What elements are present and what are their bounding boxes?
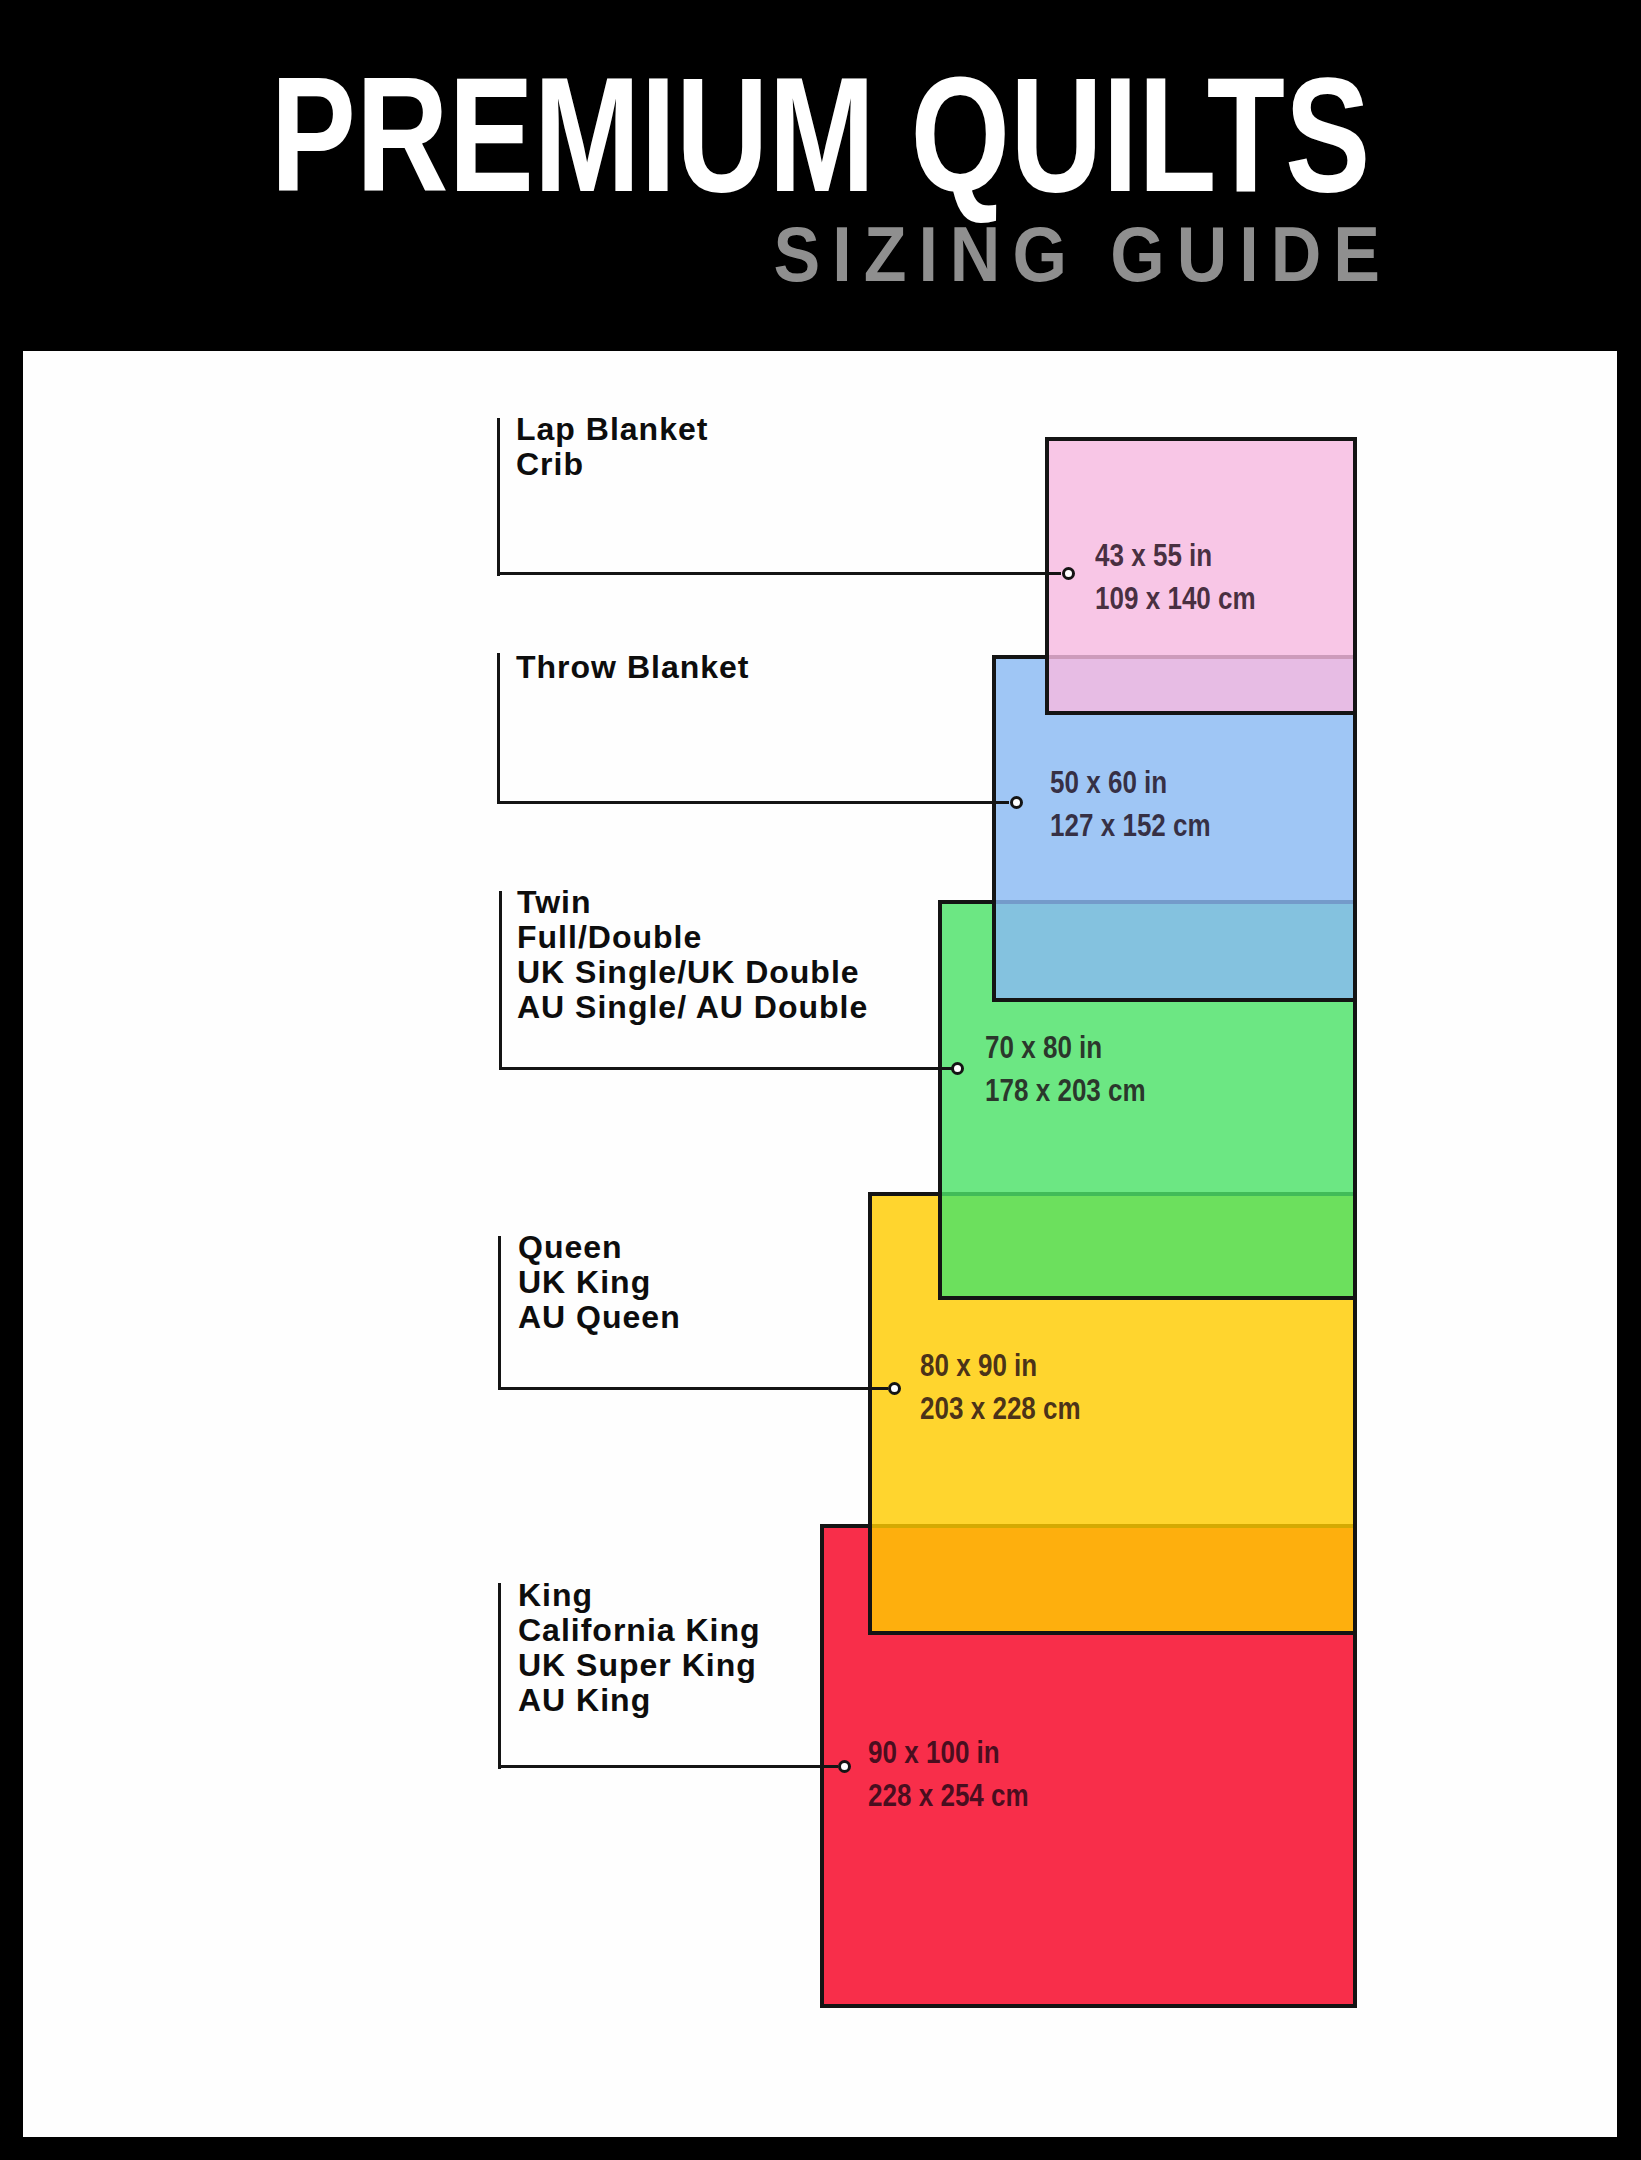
label-line: AU King: [518, 1683, 761, 1718]
quilt-name-labels: Queen UK King AU Queen: [518, 1230, 681, 1335]
page-title: PREMIUM QUILTS: [0, 40, 1641, 228]
leader-line-vertical: [499, 891, 502, 1070]
leader-line-vertical: [498, 1236, 501, 1390]
size-cm: 127 x 152 cm: [1050, 804, 1211, 847]
leader-line-horizontal: [499, 1067, 952, 1070]
label-line: AU Single/ AU Double: [517, 990, 868, 1025]
quilt-name-labels: Twin Full/Double UK Single/UK Double AU …: [517, 885, 868, 1025]
leader-line-horizontal: [497, 801, 1009, 804]
size-inches: 80 x 90 in: [920, 1344, 1081, 1387]
quilt-name-labels: Lap Blanket Crib: [516, 412, 708, 482]
size-inches: 50 x 60 in: [1050, 761, 1211, 804]
label-line: Queen: [518, 1230, 681, 1265]
label-line: Twin: [517, 885, 868, 920]
quilt-name-labels: Throw Blanket: [516, 650, 749, 685]
label-line: Full/Double: [517, 920, 868, 955]
label-line: AU Queen: [518, 1300, 681, 1335]
leader-line-horizontal: [498, 1387, 888, 1390]
leader-line-vertical: [497, 418, 500, 576]
size-cm: 203 x 228 cm: [920, 1387, 1081, 1430]
quilt-dimensions: 50 x 60 in 127 x 152 cm: [1050, 761, 1211, 847]
leader-endpoint-circle: [838, 1760, 851, 1773]
label-line: Crib: [516, 447, 708, 482]
size-inches: 43 x 55 in: [1095, 534, 1256, 577]
quilt-dimensions: 70 x 80 in 178 x 203 cm: [985, 1026, 1146, 1112]
page-subtitle: SIZING GUIDE: [774, 211, 1392, 299]
size-cm: 228 x 254 cm: [868, 1774, 1029, 1817]
label-line: Lap Blanket: [516, 412, 708, 447]
label-line: UK Super King: [518, 1648, 761, 1683]
quilt-dimensions: 90 x 100 in 228 x 254 cm: [868, 1731, 1029, 1817]
leader-endpoint-circle: [1062, 567, 1075, 580]
size-cm: 109 x 140 cm: [1095, 577, 1256, 620]
quilt-dimensions: 43 x 55 in 109 x 140 cm: [1095, 534, 1256, 620]
leader-line-vertical: [497, 653, 500, 804]
label-line: UK Single/UK Double: [517, 955, 868, 990]
quilt-dimensions: 80 x 90 in 203 x 228 cm: [920, 1344, 1081, 1430]
label-line: King: [518, 1578, 761, 1613]
leader-endpoint-circle: [951, 1062, 964, 1075]
leader-line-vertical: [498, 1583, 501, 1769]
size-cm: 178 x 203 cm: [985, 1069, 1146, 1112]
leader-line-horizontal: [498, 1765, 838, 1768]
size-inches: 70 x 80 in: [985, 1026, 1146, 1069]
label-line: UK King: [518, 1265, 681, 1300]
label-line: Throw Blanket: [516, 650, 749, 685]
quilt-name-labels: King California King UK Super King AU Ki…: [518, 1578, 761, 1718]
leader-endpoint-circle: [888, 1382, 901, 1395]
leader-endpoint-circle: [1010, 796, 1023, 809]
label-line: California King: [518, 1613, 761, 1648]
infographic-canvas: PREMIUM QUILTS SIZING GUIDE Lap Blanket …: [0, 0, 1641, 2160]
leader-line-horizontal: [497, 572, 1061, 575]
size-inches: 90 x 100 in: [868, 1731, 1029, 1774]
